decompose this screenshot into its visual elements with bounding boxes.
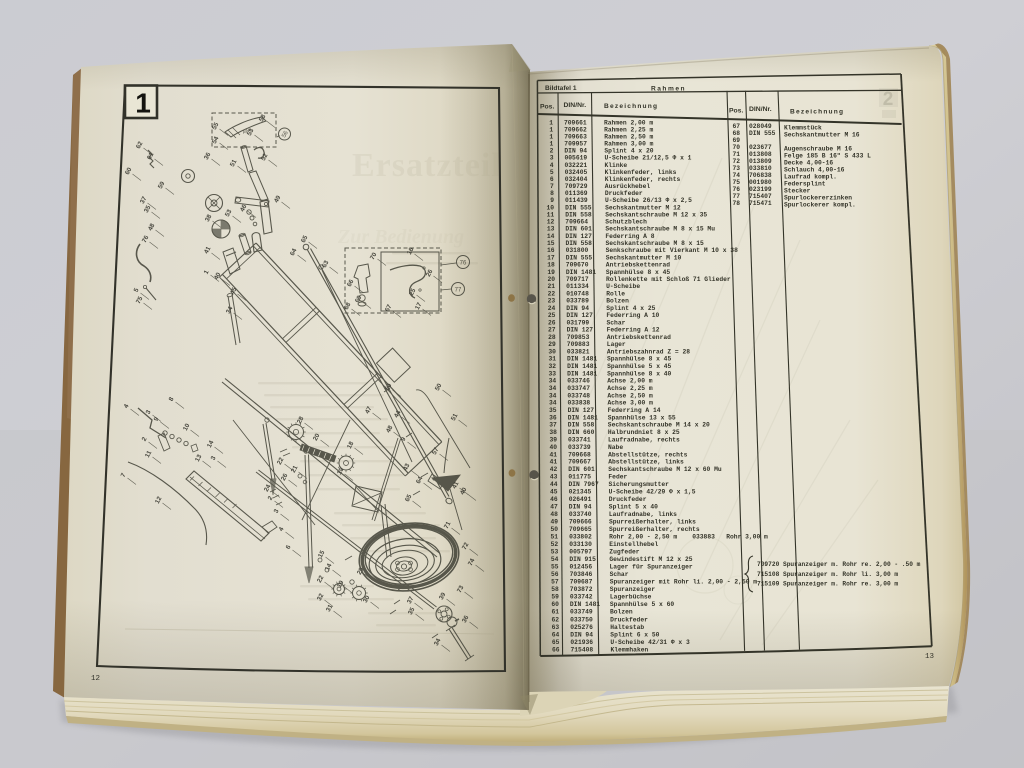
svg-text:34: 34: [549, 385, 557, 392]
svg-text:2: 2: [550, 148, 554, 155]
svg-text:Laufradnabe, rechts: Laufradnabe, rechts: [608, 437, 680, 444]
svg-text:Bezeichnung: Bezeichnung: [604, 103, 658, 110]
svg-text:DIN 601: DIN 601: [565, 226, 592, 233]
svg-text:20: 20: [547, 276, 555, 283]
svg-text:Achse 3,00 m: Achse 3,00 m: [608, 400, 654, 407]
svg-text:Sechskantschraube M 8 x 15 Mu: Sechskantschraube M 8 x 15 Mu: [605, 226, 715, 233]
svg-text:706838: 706838: [749, 172, 772, 179]
svg-text:37: 37: [549, 422, 557, 429]
svg-text:Abstellstütze, links: Abstellstütze, links: [608, 459, 684, 466]
svg-text:032405: 032405: [565, 169, 588, 176]
svg-text:Augenschraube M 16: Augenschraube M 16: [784, 146, 852, 153]
svg-text:709661: 709661: [564, 120, 587, 127]
svg-text:709957: 709957: [564, 141, 587, 148]
svg-text:11: 11: [547, 212, 555, 219]
svg-text:Pos.: Pos.: [540, 104, 554, 111]
svg-text:62: 62: [552, 616, 560, 623]
svg-text:023677: 023677: [749, 144, 772, 151]
svg-text:34: 34: [549, 378, 557, 385]
svg-text:1: 1: [549, 120, 553, 127]
svg-text:DIN 127: DIN 127: [568, 407, 595, 414]
svg-text:46: 46: [550, 496, 558, 503]
svg-text:Sechskantschraube M 14 x 20: Sechskantschraube M 14 x 20: [608, 422, 710, 429]
svg-text:16: 16: [547, 247, 555, 254]
svg-text:Rohr 2,00 - 2,50 m 033883: Rohr 2,00 - 2,50 m 033883 Rohr 3,00 m: [609, 533, 768, 540]
svg-text:DIN 1481: DIN 1481: [570, 601, 600, 608]
svg-text:Spuranzeiger mit Rohr li. 2,00: Spuranzeiger mit Rohr li. 2,00 - 2,50 m: [610, 578, 758, 585]
svg-text:2: 2: [883, 89, 894, 110]
svg-text:033741: 033741: [568, 437, 591, 444]
svg-text:DIN 558: DIN 558: [565, 212, 592, 219]
svg-text:010748: 010748: [566, 290, 589, 297]
svg-text:Bolzen: Bolzen: [606, 298, 629, 305]
svg-text:59: 59: [551, 594, 559, 601]
svg-text:39: 39: [549, 437, 557, 444]
svg-text:9: 9: [550, 197, 554, 204]
svg-text:Klinkenfeder, rechts: Klinkenfeder, rechts: [605, 176, 681, 183]
svg-text:023199: 023199: [749, 186, 772, 193]
svg-text:DIN 555: DIN 555: [566, 254, 593, 261]
svg-text:Sechskantschraube M 8 x 15: Sechskantschraube M 8 x 15: [606, 240, 704, 247]
svg-text:DIN 94: DIN 94: [569, 503, 592, 510]
svg-text:709717: 709717: [566, 276, 589, 283]
svg-text:Federsplint: Federsplint: [784, 181, 826, 188]
svg-text:709883: 709883: [567, 341, 590, 348]
svg-text:Zugfeder: Zugfeder: [609, 548, 639, 555]
svg-text:48: 48: [550, 511, 558, 518]
svg-text:Rahmen 2,25 m: Rahmen 2,25 m: [604, 127, 653, 134]
svg-text:28: 28: [548, 334, 556, 341]
svg-text:032221: 032221: [565, 162, 588, 169]
svg-text:19: 19: [547, 269, 555, 276]
svg-text:Sicherungsmutter: Sicherungsmutter: [609, 481, 670, 488]
svg-text:Spannhülse 13 x 55: Spannhülse 13 x 55: [608, 414, 676, 421]
svg-text:41: 41: [550, 459, 558, 466]
svg-text:DIN 558: DIN 558: [566, 240, 593, 247]
svg-text:Lager: Lager: [607, 341, 626, 348]
svg-text:Rahmen 2,00 m: Rahmen 2,00 m: [604, 120, 653, 127]
svg-text:57: 57: [551, 578, 559, 585]
svg-text:012456: 012456: [570, 563, 593, 570]
svg-text:Rahmen 2,50 m: Rahmen 2,50 m: [604, 134, 653, 141]
svg-text:71: 71: [732, 151, 740, 158]
svg-text:028049: 028049: [749, 123, 772, 130]
svg-text:Klemmstück: Klemmstück: [784, 125, 822, 132]
svg-text:78: 78: [732, 200, 740, 207]
svg-text:45: 45: [550, 488, 558, 495]
svg-text:Spurlockerer kompl.: Spurlockerer kompl.: [784, 202, 856, 209]
svg-text:Halbrundniet 8 x 25: Halbrundniet 8 x 25: [608, 429, 680, 436]
svg-text:703872: 703872: [570, 586, 593, 593]
svg-text:715471: 715471: [749, 200, 772, 207]
svg-text:011334: 011334: [566, 283, 589, 290]
svg-text:54: 54: [551, 556, 559, 563]
svg-text:033810: 033810: [749, 165, 772, 172]
svg-text:DIN 7967: DIN 7967: [569, 481, 599, 488]
svg-text:Ersatzteil: Ersatzteil: [352, 147, 502, 184]
svg-text:Spurlockererzinken: Spurlockererzinken: [784, 195, 852, 202]
svg-text:033746: 033746: [567, 378, 590, 385]
svg-text:033750: 033750: [570, 616, 593, 623]
svg-text:032404: 032404: [565, 176, 588, 183]
svg-text:033821: 033821: [567, 348, 590, 355]
svg-text:DIN 915: DIN 915: [569, 556, 596, 563]
svg-text:DIN/Nr.: DIN/Nr.: [749, 106, 772, 113]
svg-text:033739: 033739: [568, 444, 591, 451]
svg-text:Bolzen: Bolzen: [610, 609, 633, 616]
svg-text:49: 49: [550, 518, 558, 525]
svg-text:709662: 709662: [564, 127, 587, 134]
svg-text:43: 43: [550, 474, 558, 481]
svg-text:14: 14: [547, 233, 555, 240]
svg-text:24: 24: [548, 305, 556, 312]
svg-text:22: 22: [548, 290, 556, 297]
svg-text:709666: 709666: [569, 518, 592, 525]
svg-text:76: 76: [460, 261, 467, 267]
svg-text:021345: 021345: [569, 488, 592, 495]
svg-text:72: 72: [732, 158, 740, 165]
svg-text:DIN 127: DIN 127: [566, 312, 593, 319]
svg-text:Splint 5 x 40: Splint 5 x 40: [609, 503, 658, 510]
svg-text:033838: 033838: [568, 400, 591, 407]
svg-text:Stecker: Stecker: [784, 188, 811, 195]
svg-text:709853: 709853: [567, 334, 590, 341]
svg-text:Sechskantschraube M 12 x 60 Mu: Sechskantschraube M 12 x 60 Mu: [608, 466, 722, 473]
svg-text:Spurreißerhalter, rechts: Spurreißerhalter, rechts: [609, 526, 700, 533]
svg-text:35: 35: [549, 407, 557, 414]
svg-text:Sechskantmutter M 16: Sechskantmutter M 16: [784, 132, 860, 139]
svg-text:Laufradnabe, links: Laufradnabe, links: [609, 511, 677, 518]
svg-text:6: 6: [550, 176, 554, 183]
svg-text:13: 13: [547, 226, 555, 233]
svg-text:DIN 127: DIN 127: [567, 327, 594, 334]
svg-text:Antriebszahnrad Z = 28: Antriebszahnrad Z = 28: [607, 348, 690, 355]
svg-text:58: 58: [551, 586, 559, 593]
svg-text:Federring A 8: Federring A 8: [605, 233, 654, 240]
svg-text:033748: 033748: [567, 392, 590, 399]
svg-text:75: 75: [732, 179, 740, 186]
svg-text:DIN 94: DIN 94: [566, 305, 589, 312]
svg-text:Senkschraube mit Vierkant M 10: Senkschraube mit Vierkant M 10 x 38: [606, 247, 738, 254]
svg-text:031800: 031800: [566, 247, 589, 254]
svg-text:Achse 2,25 m: Achse 2,25 m: [607, 385, 653, 392]
svg-text:Einstellhebel: Einstellhebel: [609, 541, 658, 548]
svg-text:55: 55: [551, 563, 559, 570]
svg-text:1: 1: [549, 127, 553, 134]
svg-text:033749: 033749: [570, 609, 593, 616]
svg-text:Rahmen 3,00 m: Rahmen 3,00 m: [604, 141, 653, 148]
svg-text:DIN 1481: DIN 1481: [567, 356, 597, 363]
svg-text:Sechskantmutter M 10: Sechskantmutter M 10: [606, 254, 682, 261]
svg-text:12: 12: [547, 219, 555, 226]
svg-text:Schlauch 4,00-16: Schlauch 4,00-16: [784, 167, 845, 174]
svg-text:67: 67: [732, 123, 740, 130]
svg-text:Sechskantmutter M 12: Sechskantmutter M 12: [605, 204, 681, 211]
svg-text:011775: 011775: [568, 474, 591, 481]
svg-text:Spannhülse 5 x 45: Spannhülse 5 x 45: [607, 363, 671, 370]
svg-text:Bezeichnung: Bezeichnung: [790, 109, 844, 116]
svg-text:709665: 709665: [569, 526, 592, 533]
svg-text:61: 61: [551, 609, 559, 616]
svg-text:34: 34: [549, 400, 557, 407]
svg-text:709663: 709663: [564, 134, 587, 141]
svg-text:DIN 1481: DIN 1481: [567, 370, 597, 377]
svg-text:Druckfeder: Druckfeder: [605, 190, 643, 197]
svg-text:715407: 715407: [749, 193, 772, 200]
svg-text:77: 77: [732, 193, 740, 200]
svg-text:Druckfeder: Druckfeder: [610, 616, 648, 623]
svg-text:Splint 4 x 25: Splint 4 x 25: [606, 305, 655, 312]
svg-text:Spannhülse 5 x 60: Spannhülse 5 x 60: [610, 601, 674, 608]
svg-text:U-Scheibe 21/12,5 Φ x 1: U-Scheibe 21/12,5 Φ x 1: [605, 155, 692, 162]
svg-text:Klinkenfeder, links: Klinkenfeder, links: [605, 169, 677, 176]
svg-text:011369: 011369: [565, 190, 588, 197]
svg-text:Schar: Schar: [607, 319, 626, 326]
svg-text:3: 3: [550, 155, 554, 162]
svg-text:42: 42: [550, 466, 558, 473]
svg-text:Splint 4 x 20: Splint 4 x 20: [604, 148, 653, 155]
svg-text:DIN 555: DIN 555: [565, 204, 592, 211]
svg-text:10: 10: [547, 204, 555, 211]
svg-text:1: 1: [549, 134, 553, 141]
svg-text:26: 26: [548, 319, 556, 326]
svg-text:011439: 011439: [565, 197, 588, 204]
svg-text:7: 7: [550, 183, 554, 190]
svg-text:Schar: Schar: [610, 571, 629, 578]
svg-text:64: 64: [552, 632, 560, 639]
svg-text:23: 23: [548, 298, 556, 305]
svg-text:DIN 1481: DIN 1481: [567, 363, 597, 370]
svg-text:709668: 709668: [568, 451, 591, 458]
svg-text:44: 44: [550, 481, 558, 488]
svg-text:033740: 033740: [569, 511, 592, 518]
svg-text:709670: 709670: [566, 262, 589, 269]
svg-text:Achse 2,00 m: Achse 2,00 m: [607, 378, 653, 385]
svg-text:715408: 715408: [571, 647, 594, 654]
svg-text:Laufrad kompl.: Laufrad kompl.: [784, 174, 837, 181]
svg-text:Feder: Feder: [608, 474, 627, 481]
svg-text:709729: 709729: [565, 183, 588, 190]
svg-text:77: 77: [455, 288, 462, 294]
svg-text:DIN 660: DIN 660: [568, 429, 595, 436]
svg-text:DIN 601: DIN 601: [568, 466, 595, 473]
svg-text:18: 18: [547, 262, 555, 269]
svg-text:001980: 001980: [749, 179, 772, 186]
svg-text:013809: 013809: [749, 158, 772, 165]
svg-text:DIN 1481: DIN 1481: [568, 414, 598, 421]
svg-text:31: 31: [548, 356, 556, 363]
svg-text:033802: 033802: [569, 533, 592, 540]
svg-text:Nabe: Nabe: [608, 444, 623, 451]
svg-text:Ausrückhebel: Ausrückhebel: [605, 183, 651, 190]
svg-text:Antriebskettenrad: Antriebskettenrad: [607, 334, 671, 341]
svg-text:4: 4: [550, 162, 554, 169]
svg-text:69: 69: [732, 137, 740, 144]
svg-text:709664: 709664: [565, 219, 588, 226]
svg-text:Spannhülse 8 x 45: Spannhülse 8 x 45: [607, 356, 671, 363]
svg-text:Klemmhaken: Klemmhaken: [611, 647, 649, 654]
svg-text:DIN 558: DIN 558: [568, 422, 595, 429]
svg-text:33: 33: [549, 370, 557, 377]
svg-text:47: 47: [550, 503, 558, 510]
svg-text:DIN 1481: DIN 1481: [566, 269, 596, 276]
svg-text:40: 40: [549, 444, 557, 451]
svg-text:5: 5: [550, 169, 554, 176]
svg-text:Schutzblech: Schutzblech: [605, 219, 647, 226]
svg-text:Antriebskettenrad: Antriebskettenrad: [606, 262, 670, 269]
svg-text:Rahmen: Rahmen: [651, 86, 686, 93]
svg-text:Spannhülse 8 x 45: Spannhülse 8 x 45: [606, 269, 670, 276]
svg-text:38: 38: [549, 429, 557, 436]
svg-text:63: 63: [552, 624, 560, 631]
svg-text:Decke 4,00-16: Decke 4,00-16: [784, 160, 833, 167]
svg-text:033130: 033130: [569, 541, 592, 548]
svg-text:U-Scheibe 26/13 Φ x 2,5: U-Scheibe 26/13 Φ x 2,5: [605, 197, 692, 204]
svg-text:DIN 94: DIN 94: [564, 148, 587, 155]
svg-text:Bildtafel 1: Bildtafel 1: [545, 85, 577, 92]
svg-text:Spurreißerhalter, links: Spurreißerhalter, links: [609, 518, 696, 525]
svg-text:76: 76: [732, 186, 740, 193]
svg-text:1: 1: [550, 141, 554, 148]
svg-text:021936: 021936: [570, 639, 593, 646]
svg-text:15: 15: [547, 240, 555, 247]
svg-text:U-Scheibe: U-Scheibe: [606, 283, 640, 290]
svg-text:U-Scheibe 42/31 Φ x 3: U-Scheibe 42/31 Φ x 3: [610, 639, 690, 646]
svg-text:005619: 005619: [565, 155, 588, 162]
svg-text:033747: 033747: [567, 385, 590, 392]
svg-text:66: 66: [552, 647, 560, 654]
svg-text:21: 21: [548, 283, 556, 290]
svg-text:Federring A 14: Federring A 14: [608, 407, 661, 414]
svg-text:DIN 94: DIN 94: [570, 632, 593, 639]
svg-text:DIN/Nr.: DIN/Nr.: [564, 102, 587, 109]
svg-text:Lager für Spuranzeiger: Lager für Spuranzeiger: [610, 563, 693, 570]
svg-text:033789: 033789: [566, 298, 589, 305]
svg-text:026491: 026491: [569, 496, 592, 503]
svg-text:Achse 2,50 m: Achse 2,50 m: [607, 392, 653, 399]
svg-text:Splint 6 x 50: Splint 6 x 50: [610, 632, 659, 639]
svg-text:709720 Spuranzeiger m. Rohr r: 709720 Spuranzeiger m. Rohr re. 2,00 - .…: [757, 561, 921, 568]
svg-text:031799: 031799: [567, 319, 590, 326]
svg-text:Gewindestift M 12 x 25: Gewindestift M 12 x 25: [609, 556, 692, 563]
svg-text:025276: 025276: [570, 624, 593, 631]
svg-text:74: 74: [732, 172, 740, 179]
svg-text:Federring A 12: Federring A 12: [607, 327, 660, 334]
svg-text:Lagerbüchse: Lagerbüchse: [610, 594, 652, 601]
svg-text:30: 30: [548, 348, 556, 355]
svg-text:Felge 185 B 16″ S 433 L: Felge 185 B 16″ S 433 L: [784, 153, 871, 160]
svg-text:Spannhülse 8 x 40: Spannhülse 8 x 40: [607, 370, 671, 377]
svg-text:005797: 005797: [569, 548, 592, 555]
svg-text:Druckfeder: Druckfeder: [609, 496, 647, 503]
svg-text:Federring A 10: Federring A 10: [606, 312, 659, 319]
svg-text:013808: 013808: [749, 151, 772, 158]
svg-text:68: 68: [732, 130, 740, 137]
svg-text:73: 73: [732, 165, 740, 172]
svg-text:8: 8: [550, 190, 554, 197]
svg-text:36: 36: [549, 414, 557, 421]
svg-text:709687: 709687: [570, 578, 593, 585]
svg-text:715109 Spuranzeiger m. Rohr r: 715109 Spuranzeiger m. Rohr re. 3,00 m: [757, 581, 898, 588]
svg-text:25: 25: [548, 312, 556, 319]
svg-text:Pos.: Pos.: [729, 108, 743, 115]
svg-text:703846: 703846: [570, 571, 593, 578]
svg-text:53: 53: [551, 548, 559, 555]
svg-text:50: 50: [550, 526, 558, 533]
svg-text:65: 65: [552, 639, 560, 646]
svg-text:709667: 709667: [568, 459, 591, 466]
svg-text:Klinke: Klinke: [605, 162, 628, 169]
svg-text:DIN 127: DIN 127: [565, 233, 592, 240]
svg-text:Rollenkette mit Schloß 71 Glie: Rollenkette mit Schloß 71 Glieder: [606, 276, 731, 283]
svg-text:Sechskantschraube M 12 x 35: Sechskantschraube M 12 x 35: [605, 212, 707, 219]
svg-text:17: 17: [547, 254, 555, 261]
svg-text:32: 32: [549, 363, 557, 370]
svg-text:Rolle: Rolle: [606, 290, 625, 297]
svg-text:U-Scheibe 42/29 Φ x 1,5: U-Scheibe 42/29 Φ x 1,5: [609, 488, 696, 495]
svg-text:52: 52: [551, 541, 559, 548]
svg-text:Zur Bedienung: Zur Bedienung: [337, 226, 464, 248]
svg-text:12: 12: [91, 675, 100, 683]
svg-text:41: 41: [550, 451, 558, 458]
svg-text:29: 29: [548, 341, 556, 348]
svg-text:DIN 555: DIN 555: [749, 130, 776, 137]
svg-text:Haltestab: Haltestab: [610, 624, 644, 631]
svg-text:Abstellstütze, rechts: Abstellstütze, rechts: [608, 451, 688, 458]
svg-text:13: 13: [925, 653, 935, 661]
svg-text:715108 Spuranzeiger m. Rohr l: 715108 Spuranzeiger m. Rohr li. 3,00 m: [757, 571, 898, 578]
svg-text:033742: 033742: [570, 594, 593, 601]
svg-text:1: 1: [135, 88, 151, 119]
svg-text:Spuranzeiger: Spuranzeiger: [610, 586, 656, 593]
svg-text:60: 60: [551, 601, 559, 608]
svg-text:51: 51: [551, 533, 559, 540]
svg-text:70: 70: [732, 144, 740, 151]
svg-text:56: 56: [551, 571, 559, 578]
svg-text:34: 34: [549, 392, 557, 399]
svg-text:27: 27: [548, 327, 556, 334]
